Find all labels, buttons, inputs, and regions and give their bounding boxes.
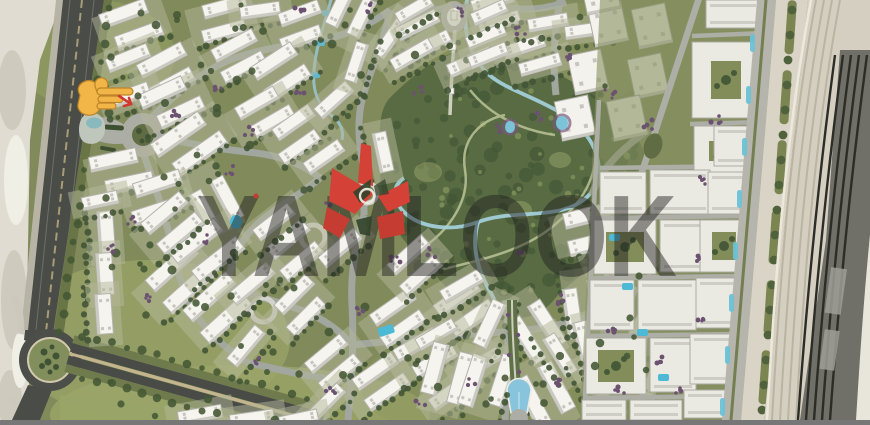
svg-text:YAMLOOK: YAMLOOK [197, 171, 677, 301]
